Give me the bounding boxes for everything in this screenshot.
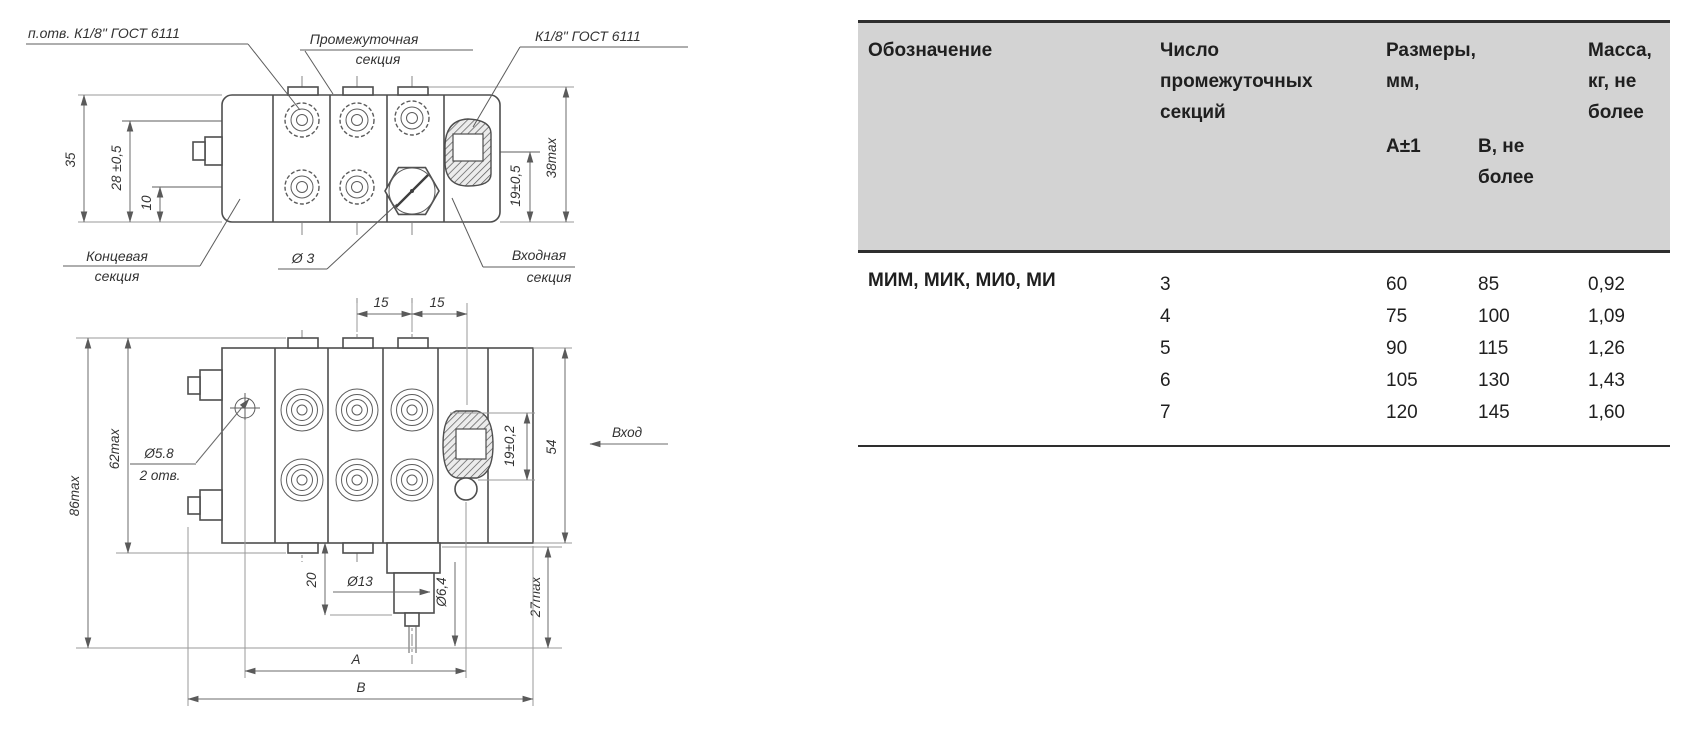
dim-38max: 38max [544,136,559,178]
screw-plug [343,543,373,553]
top-view: 35 28 ±0,5 10 19±0,5 38max п.отв. К1/8" … [26,25,688,285]
cell-b: 100 [1478,306,1510,328]
page: 35 28 ±0,5 10 19±0,5 38max п.отв. К1/8" … [0,0,1705,744]
table-row: 3 60 85 0,92 [858,270,1670,302]
cell-sections: 7 [1160,402,1171,424]
technical-drawing: 35 28 ±0,5 10 19±0,5 38max п.отв. К1/8" … [0,0,760,744]
dim-b: B [356,680,365,695]
dim-27max: 27max [528,575,543,618]
dim-15-right: 15 [429,295,445,310]
label-inlet-section-line2: секция [527,269,572,285]
label-hole-d58-line1: Ø5.8 [143,446,174,461]
screw-plug [398,87,428,95]
screw-plug [288,338,318,348]
label-inlet-arrow: Вход [612,425,643,440]
table-row: 7 120 145 1,60 [858,398,1670,430]
cell-a: 60 [1386,274,1407,296]
header-col-a: A±1 [1386,131,1421,162]
screw-plug [288,543,318,553]
cell-sections: 6 [1160,370,1171,392]
label-inlet-section-line1: Входная [512,247,567,263]
label-tapped-hole: п.отв. К1/8" ГОСТ 6111 [28,25,180,41]
dim-54: 54 [544,439,559,454]
header-mass: Масса, кг, не более [1588,35,1668,128]
bottom-view: 15 15 62max 86max Ø5.8 2 отв. 19±0,2 54 [67,295,668,706]
label-end-section-line1: Концевая [86,248,148,264]
dim-86max: 86max [67,474,82,516]
table-row: 5 90 115 1,26 [858,334,1670,366]
cell-b: 85 [1478,274,1499,296]
screw-plug [343,338,373,348]
dim-d13: Ø13 [346,574,373,589]
label-intermediate-line2: секция [356,51,401,67]
cell-sections: 5 [1160,338,1171,360]
dim-19-bottom: 19±0,2 [502,425,517,467]
cell-mass: 1,43 [1588,370,1625,392]
dim-15-left: 15 [373,295,389,310]
bottom-outlet [387,543,440,653]
dim-35: 35 [63,152,78,168]
cell-b: 115 [1478,338,1508,360]
header-designation: Обозначение [868,35,992,66]
dim-10: 10 [139,195,154,211]
header-col-b: B, не более [1478,131,1546,193]
dim-19-top: 19±0,5 [508,165,523,207]
screw-plug [343,87,373,95]
inlet-fitting [445,119,491,186]
dim-20: 20 [304,572,319,589]
cell-a: 75 [1386,306,1407,328]
cell-a: 120 [1386,402,1418,424]
dim-a: A [350,652,360,667]
cell-mass: 1,60 [1588,402,1625,424]
header-sections-count: Число промежуточных секций [1160,35,1328,128]
label-hole-d3: Ø 3 [291,250,315,266]
spec-table-body: МИМ, МИК, МИ0, МИ 3 60 85 0,92 4 75 100 … [858,253,1670,447]
cell-b: 145 [1478,402,1510,424]
label-hole-d58-line2: 2 отв. [139,468,181,483]
table-row: 4 75 100 1,09 [858,302,1670,334]
cell-a: 105 [1386,370,1418,392]
header-dimensions: Размеры, мм, [1386,35,1504,97]
label-intermediate-line1: Промежуточная [310,31,419,47]
table-row: 6 105 130 1,43 [858,366,1670,398]
cell-sections: 3 [1160,274,1171,296]
label-end-section-line2: секция [95,268,140,284]
cell-b: 130 [1478,370,1510,392]
mounting-bolts [188,370,222,520]
cell-a: 90 [1386,338,1407,360]
label-thread: К1/8" ГОСТ 6111 [535,28,641,44]
cell-mass: 1,26 [1588,338,1625,360]
spec-table: Обозначение Число промежуточных секций Р… [858,20,1670,447]
cell-mass: 0,92 [1588,274,1625,296]
screw-plug [398,338,428,348]
dim-62max: 62max [107,427,122,469]
cell-mass: 1,09 [1588,306,1625,328]
dim-d64: Ø6,4 [434,577,449,607]
screw-plug [288,87,318,95]
cell-sections: 4 [1160,306,1171,328]
dim-28: 28 ±0,5 [109,145,124,191]
spec-table-header: Обозначение Число промежуточных секций Р… [858,20,1670,253]
side-bolt [193,137,222,165]
